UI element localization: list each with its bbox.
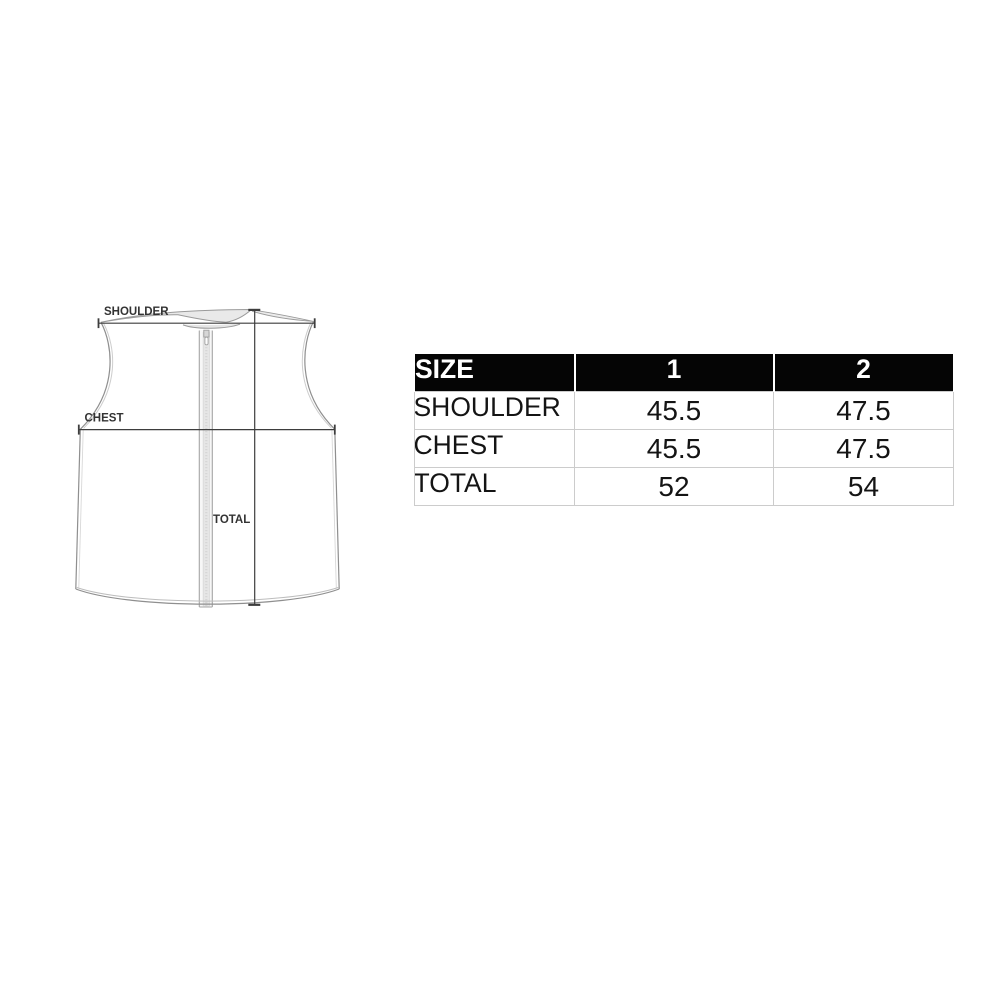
svg-text:TOTAL: TOTAL	[213, 514, 250, 526]
svg-text:CHEST: CHEST	[85, 413, 124, 425]
svg-text:SHOULDER: SHOULDER	[104, 306, 169, 318]
